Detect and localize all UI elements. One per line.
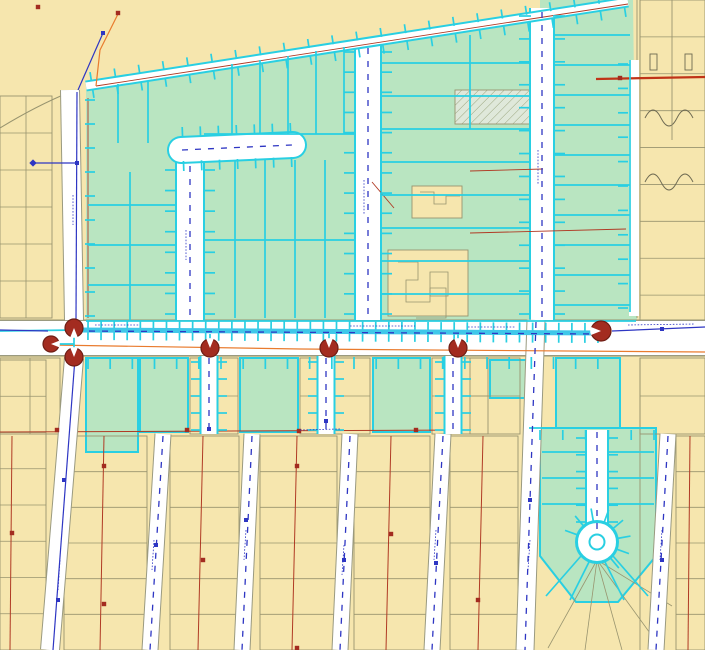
- network-node-marker: [154, 543, 158, 547]
- valve-symbol[interactable]: [449, 338, 467, 357]
- utility-node-marker: [476, 598, 480, 602]
- network-node-marker: [324, 419, 328, 423]
- valve-symbol[interactable]: [201, 338, 219, 357]
- valve-symbol[interactable]: [65, 347, 83, 366]
- utility-node-marker: [295, 646, 299, 650]
- utility-node-marker: [185, 428, 189, 432]
- network-node-marker: [207, 427, 211, 431]
- network-node-marker: [244, 518, 248, 522]
- gis-map-viewport[interactable]: [0, 0, 705, 650]
- network-node-marker: [528, 498, 532, 502]
- utility-node-marker: [297, 429, 301, 433]
- utility-node-marker: [414, 428, 418, 432]
- network-node-marker: [434, 561, 438, 565]
- utility-node-marker: [55, 428, 59, 432]
- map-canvas[interactable]: [0, 0, 705, 650]
- network-node-marker: [56, 598, 60, 602]
- utility-node-marker: [389, 532, 393, 536]
- utility-node-marker: [295, 464, 299, 468]
- valve-symbol[interactable]: [65, 319, 83, 338]
- valve-symbol[interactable]: [43, 336, 60, 352]
- valve-symbol[interactable]: [590, 321, 611, 341]
- valve-symbol[interactable]: [320, 338, 338, 357]
- utility-node-marker: [618, 76, 622, 80]
- network-node-marker: [101, 31, 105, 35]
- network-node-marker: [660, 558, 664, 562]
- utility-node-marker: [102, 464, 106, 468]
- utility-node-marker: [102, 602, 106, 606]
- network-node-marker: [75, 161, 79, 165]
- utility-node-marker: [116, 11, 120, 15]
- utility-node-marker: [36, 5, 40, 9]
- network-node-marker: [660, 327, 664, 331]
- network-node-marker: [62, 478, 66, 482]
- utility-node-marker: [10, 531, 14, 535]
- utility-node-marker: [201, 558, 205, 562]
